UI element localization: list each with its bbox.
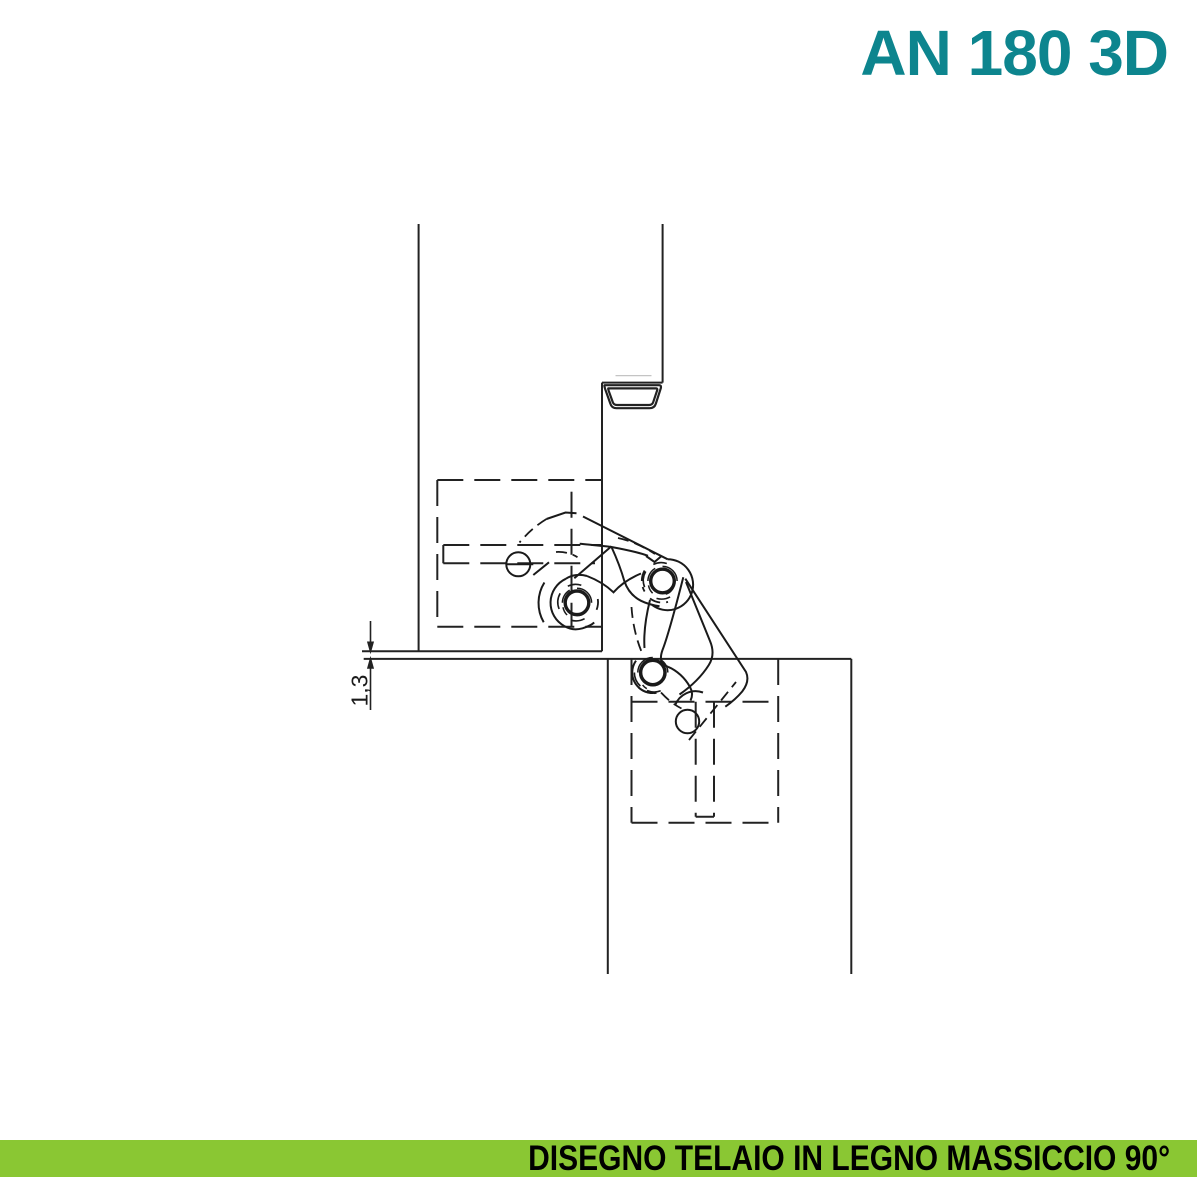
svg-text:1,3: 1,3 [347,675,373,707]
